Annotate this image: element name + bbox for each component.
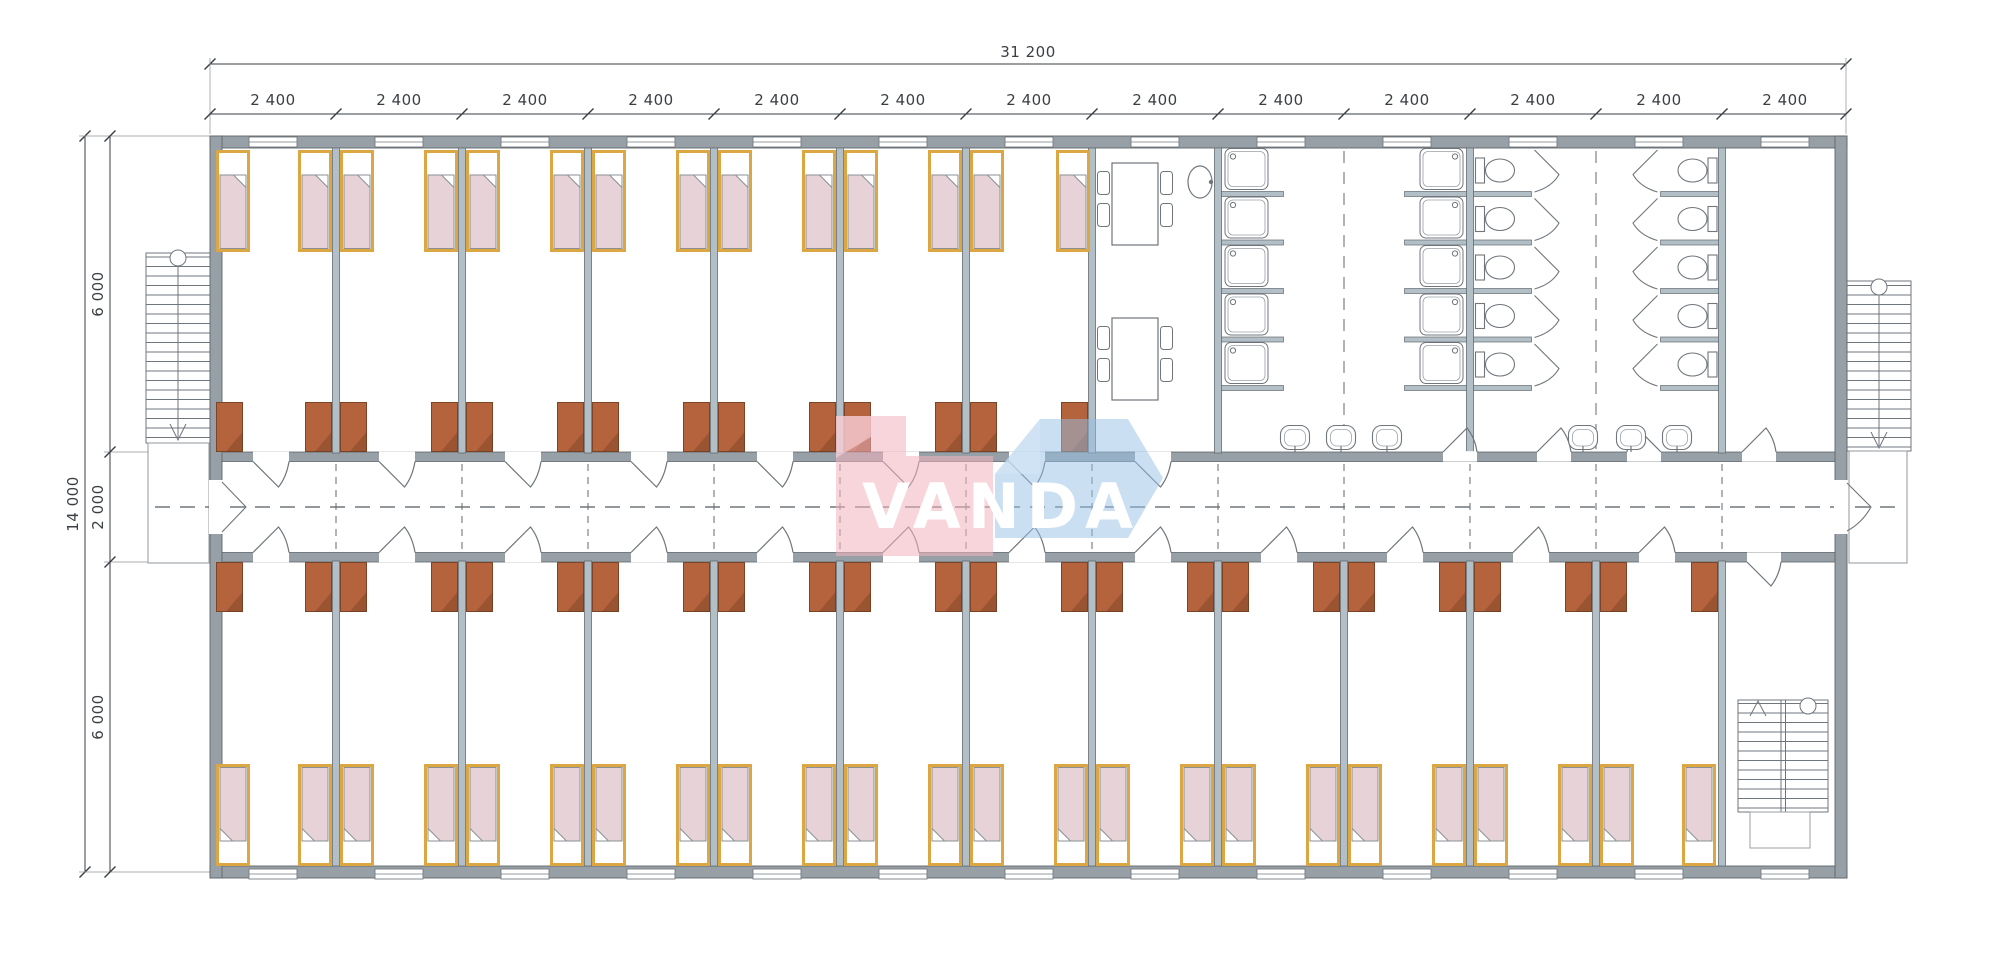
vanda-logo: VANDA xyxy=(836,416,1163,556)
partition-wall xyxy=(837,561,844,866)
window xyxy=(501,137,549,147)
bed xyxy=(1476,766,1507,865)
stall-door xyxy=(1633,199,1658,241)
wardrobe xyxy=(1566,563,1592,612)
stall-divider xyxy=(1474,192,1532,197)
wardrobe xyxy=(684,563,710,612)
floor-plan-page: 31 200 2 400 2 400 2 400 2 400 2 400 2 4… xyxy=(0,0,2000,977)
chair xyxy=(1161,204,1173,227)
chair xyxy=(1098,172,1110,195)
window xyxy=(1131,869,1179,879)
door-swing xyxy=(253,452,289,487)
bed xyxy=(846,152,877,251)
chair xyxy=(1161,327,1173,350)
window xyxy=(1509,137,1557,147)
window xyxy=(879,137,927,147)
partition-wall xyxy=(963,561,970,866)
chair xyxy=(1098,204,1110,227)
shower-stall xyxy=(1225,343,1268,384)
stall-door xyxy=(1633,150,1658,192)
wardrobe xyxy=(936,563,962,612)
wardrobe xyxy=(971,403,997,452)
dim-module: 2 400 xyxy=(1258,91,1303,109)
wardrobe xyxy=(810,563,836,612)
partition-wall xyxy=(333,561,340,866)
door-swing xyxy=(379,527,415,562)
stall-door xyxy=(1633,247,1658,289)
logo-text: VANDA xyxy=(862,470,1140,543)
corridor-end-opening-left xyxy=(209,480,223,534)
bed xyxy=(930,152,961,251)
window xyxy=(501,869,549,879)
window xyxy=(627,869,675,879)
window xyxy=(627,137,675,147)
dim-bottom-depth: 6 000 xyxy=(89,694,107,739)
toilet xyxy=(1476,255,1515,280)
floor-plan: 31 200 2 400 2 400 2 400 2 400 2 400 2 4… xyxy=(0,0,2000,977)
dim-module: 2 400 xyxy=(1510,91,1555,109)
bed xyxy=(218,152,249,251)
stair-right xyxy=(1847,279,1911,563)
door-swing xyxy=(631,527,667,562)
wardrobe xyxy=(1097,563,1123,612)
bed xyxy=(468,152,499,251)
dim-module: 2 400 xyxy=(1132,91,1177,109)
partition-wall xyxy=(1089,561,1096,866)
wardrobe xyxy=(1692,563,1718,612)
beds-top xyxy=(218,152,1089,251)
bed xyxy=(678,766,709,865)
stall-door xyxy=(1535,247,1560,289)
chair xyxy=(1161,172,1173,195)
window xyxy=(1005,137,1053,147)
dim-module: 2 400 xyxy=(1636,91,1681,109)
bed xyxy=(552,152,583,251)
dim-module: 2 400 xyxy=(754,91,799,109)
wardrobe xyxy=(558,563,584,612)
bed xyxy=(594,766,625,865)
wardrobe xyxy=(1601,563,1627,612)
door-swing-wc1 xyxy=(1537,428,1571,462)
bed xyxy=(342,152,373,251)
shower-divider xyxy=(1405,386,1467,391)
door-swing xyxy=(379,452,415,487)
door-swing xyxy=(1639,527,1675,562)
partition-wall xyxy=(1215,561,1222,866)
partition-wall xyxy=(585,561,592,866)
door-swing xyxy=(757,527,793,562)
wash-basin xyxy=(1569,426,1598,453)
stair-start-marker xyxy=(1871,279,1887,295)
wardrobe xyxy=(1062,563,1088,612)
bed xyxy=(1098,766,1129,865)
wardrobe xyxy=(306,403,332,452)
bed xyxy=(218,766,249,865)
bed xyxy=(1058,152,1089,251)
sink xyxy=(1188,166,1212,198)
wardrobe xyxy=(467,403,493,452)
shower-divider xyxy=(1222,337,1284,342)
wash-basin xyxy=(1327,426,1356,453)
wardrobe xyxy=(341,403,367,452)
window xyxy=(1635,137,1683,147)
bed xyxy=(972,766,1003,865)
bed xyxy=(678,152,709,251)
stair-room xyxy=(1738,698,1828,848)
shower-divider xyxy=(1405,240,1467,245)
toilet xyxy=(1678,207,1717,232)
partition-wall xyxy=(1467,561,1474,866)
toilet xyxy=(1476,207,1515,232)
wardrobe xyxy=(1223,563,1249,612)
bed xyxy=(1602,766,1633,865)
window xyxy=(1005,869,1053,879)
partition-wall xyxy=(1341,561,1348,866)
door-swing xyxy=(505,527,541,562)
dim-module: 2 400 xyxy=(628,91,673,109)
bed xyxy=(1056,766,1087,865)
wardrobe xyxy=(432,563,458,612)
dim-module: 2 400 xyxy=(1384,91,1429,109)
bed xyxy=(1350,766,1381,865)
bed xyxy=(1560,766,1591,865)
wardrobe xyxy=(593,563,619,612)
stall-divider xyxy=(1661,337,1719,342)
partition-wall xyxy=(1593,561,1600,866)
wardrobe xyxy=(1440,563,1466,612)
stair-landing xyxy=(148,443,209,563)
wardrobe xyxy=(719,563,745,612)
door-swing xyxy=(1135,527,1171,562)
wardrobe xyxy=(306,563,332,612)
wardrobe xyxy=(936,403,962,452)
bed xyxy=(930,766,961,865)
stall-divider xyxy=(1661,240,1719,245)
stair-start-marker xyxy=(1800,698,1816,714)
door-swing xyxy=(253,527,289,562)
wardrobe xyxy=(558,403,584,452)
bed xyxy=(426,766,457,865)
stall-divider xyxy=(1661,386,1719,391)
partition-wall xyxy=(459,561,466,866)
dim-overall-depth: 14 000 xyxy=(64,476,82,532)
stall-divider xyxy=(1474,386,1532,391)
stall-door xyxy=(1633,344,1658,386)
wash-basin xyxy=(1373,426,1402,453)
shower-divider xyxy=(1405,289,1467,294)
bed xyxy=(342,766,373,865)
toilet xyxy=(1678,255,1717,280)
partition-wall xyxy=(837,148,844,453)
window xyxy=(1257,137,1305,147)
toilet-block-1 xyxy=(1474,150,1560,391)
window xyxy=(249,137,297,147)
partition-wall xyxy=(1719,148,1726,453)
partition-wall xyxy=(333,148,340,453)
bed xyxy=(804,766,835,865)
toilet xyxy=(1678,352,1717,377)
window xyxy=(1257,869,1305,879)
wash-basin xyxy=(1663,426,1692,453)
door-swing-stair-room xyxy=(1747,552,1781,586)
corridor-end-opening-right xyxy=(1834,480,1848,534)
bed xyxy=(804,152,835,251)
shower-divider xyxy=(1405,337,1467,342)
door-swing xyxy=(505,452,541,487)
toilet xyxy=(1476,304,1515,329)
dim-module: 2 400 xyxy=(1006,91,1051,109)
window xyxy=(879,869,927,879)
bed xyxy=(300,766,331,865)
dim-overall-width: 31 200 xyxy=(1000,43,1056,61)
stall-door xyxy=(1535,199,1560,241)
toilet xyxy=(1678,158,1717,183)
wardrobe xyxy=(684,403,710,452)
wardrobe xyxy=(1475,563,1501,612)
window xyxy=(1761,869,1809,879)
wardrobe xyxy=(1188,563,1214,612)
partition-wall xyxy=(963,148,970,453)
window xyxy=(375,869,423,879)
chair xyxy=(1098,327,1110,350)
window xyxy=(1509,869,1557,879)
window xyxy=(1383,869,1431,879)
door-swing-end-room xyxy=(1742,428,1776,462)
stall-divider xyxy=(1661,289,1719,294)
dim-module: 2 400 xyxy=(880,91,925,109)
window xyxy=(753,869,801,879)
partition-wall xyxy=(1215,148,1222,453)
window xyxy=(1761,137,1809,147)
stair-start-marker xyxy=(170,250,186,266)
window xyxy=(1131,137,1179,147)
wardrobe xyxy=(1314,563,1340,612)
wardrobe xyxy=(217,403,243,452)
stall-divider xyxy=(1474,337,1532,342)
door-swing xyxy=(1513,527,1549,562)
wardrobe xyxy=(217,563,243,612)
partition-wall xyxy=(585,148,592,453)
shower-stall xyxy=(1420,197,1463,238)
wardrobe xyxy=(845,563,871,612)
stall-door xyxy=(1535,296,1560,338)
window xyxy=(753,137,801,147)
stall-door xyxy=(1535,150,1560,192)
bed xyxy=(720,152,751,251)
stall-divider xyxy=(1474,289,1532,294)
toilet xyxy=(1476,352,1515,377)
bed xyxy=(1684,766,1715,865)
toilet-block-2 xyxy=(1569,150,1719,452)
window xyxy=(375,137,423,147)
dining-area xyxy=(1098,163,1214,400)
bed xyxy=(1308,766,1339,865)
chair xyxy=(1098,359,1110,382)
chair xyxy=(1161,359,1173,382)
dim-top-depth: 6 000 xyxy=(89,271,107,316)
door-swing xyxy=(631,452,667,487)
stall-door xyxy=(1535,344,1560,386)
dimension-left: 14 000 6 000 2 000 6 000 xyxy=(64,131,216,878)
bed xyxy=(720,766,751,865)
shower-stall xyxy=(1420,343,1463,384)
shower-divider xyxy=(1222,240,1284,245)
shower-divider xyxy=(1405,192,1467,197)
wardrobe xyxy=(810,403,836,452)
partition-wall xyxy=(711,561,718,866)
shower-stall xyxy=(1225,149,1268,190)
window xyxy=(1383,137,1431,147)
door-swing xyxy=(757,452,793,487)
wardrobe xyxy=(719,403,745,452)
stair-landing xyxy=(1750,812,1810,848)
shower-divider xyxy=(1222,386,1284,391)
partition-wall xyxy=(1467,148,1474,453)
window xyxy=(249,869,297,879)
dim-corridor: 2 000 xyxy=(89,484,107,529)
partition-wall xyxy=(459,148,466,453)
wardrobe xyxy=(1349,563,1375,612)
stall-divider xyxy=(1661,192,1719,197)
window xyxy=(1635,869,1683,879)
shower-stall xyxy=(1225,197,1268,238)
bed xyxy=(1224,766,1255,865)
wardrobes-top xyxy=(217,403,1088,452)
stair-left xyxy=(146,250,210,563)
dim-module: 2 400 xyxy=(376,91,421,109)
door-swing xyxy=(1261,527,1297,562)
bed xyxy=(1182,766,1213,865)
bed xyxy=(300,152,331,251)
door-swing xyxy=(1387,527,1423,562)
bed xyxy=(468,766,499,865)
wash-basin xyxy=(1281,426,1310,453)
toilet xyxy=(1678,304,1717,329)
wardrobe xyxy=(432,403,458,452)
dim-module: 2 400 xyxy=(1762,91,1807,109)
wash-basin xyxy=(1617,426,1646,453)
dining-table xyxy=(1112,318,1158,400)
dim-module: 2 400 xyxy=(502,91,547,109)
stall-door xyxy=(1633,296,1658,338)
shower-divider xyxy=(1222,192,1284,197)
wardrobe xyxy=(341,563,367,612)
bed xyxy=(426,152,457,251)
dining-table xyxy=(1112,163,1158,245)
sink-tap xyxy=(1209,180,1213,184)
wardrobe xyxy=(971,563,997,612)
bed xyxy=(594,152,625,251)
bed xyxy=(846,766,877,865)
bed xyxy=(552,766,583,865)
shower-stall xyxy=(1225,294,1268,335)
bed xyxy=(1434,766,1465,865)
shower-stall xyxy=(1420,149,1463,190)
toilet xyxy=(1476,158,1515,183)
wardrobe xyxy=(467,563,493,612)
shower-divider xyxy=(1222,289,1284,294)
stair-steps xyxy=(1738,700,1828,812)
dim-module: 2 400 xyxy=(250,91,295,109)
wardrobe xyxy=(593,403,619,452)
stall-divider xyxy=(1474,240,1532,245)
dimension-top: 31 200 2 400 2 400 2 400 2 400 2 400 2 4… xyxy=(205,43,1852,134)
shower-stall xyxy=(1225,246,1268,287)
logo-blue-bevel xyxy=(995,419,1040,474)
shower-stall xyxy=(1420,246,1463,287)
bed xyxy=(972,152,1003,251)
shower-stall xyxy=(1420,294,1463,335)
partition-wall xyxy=(1719,561,1726,866)
partition-wall xyxy=(711,148,718,453)
